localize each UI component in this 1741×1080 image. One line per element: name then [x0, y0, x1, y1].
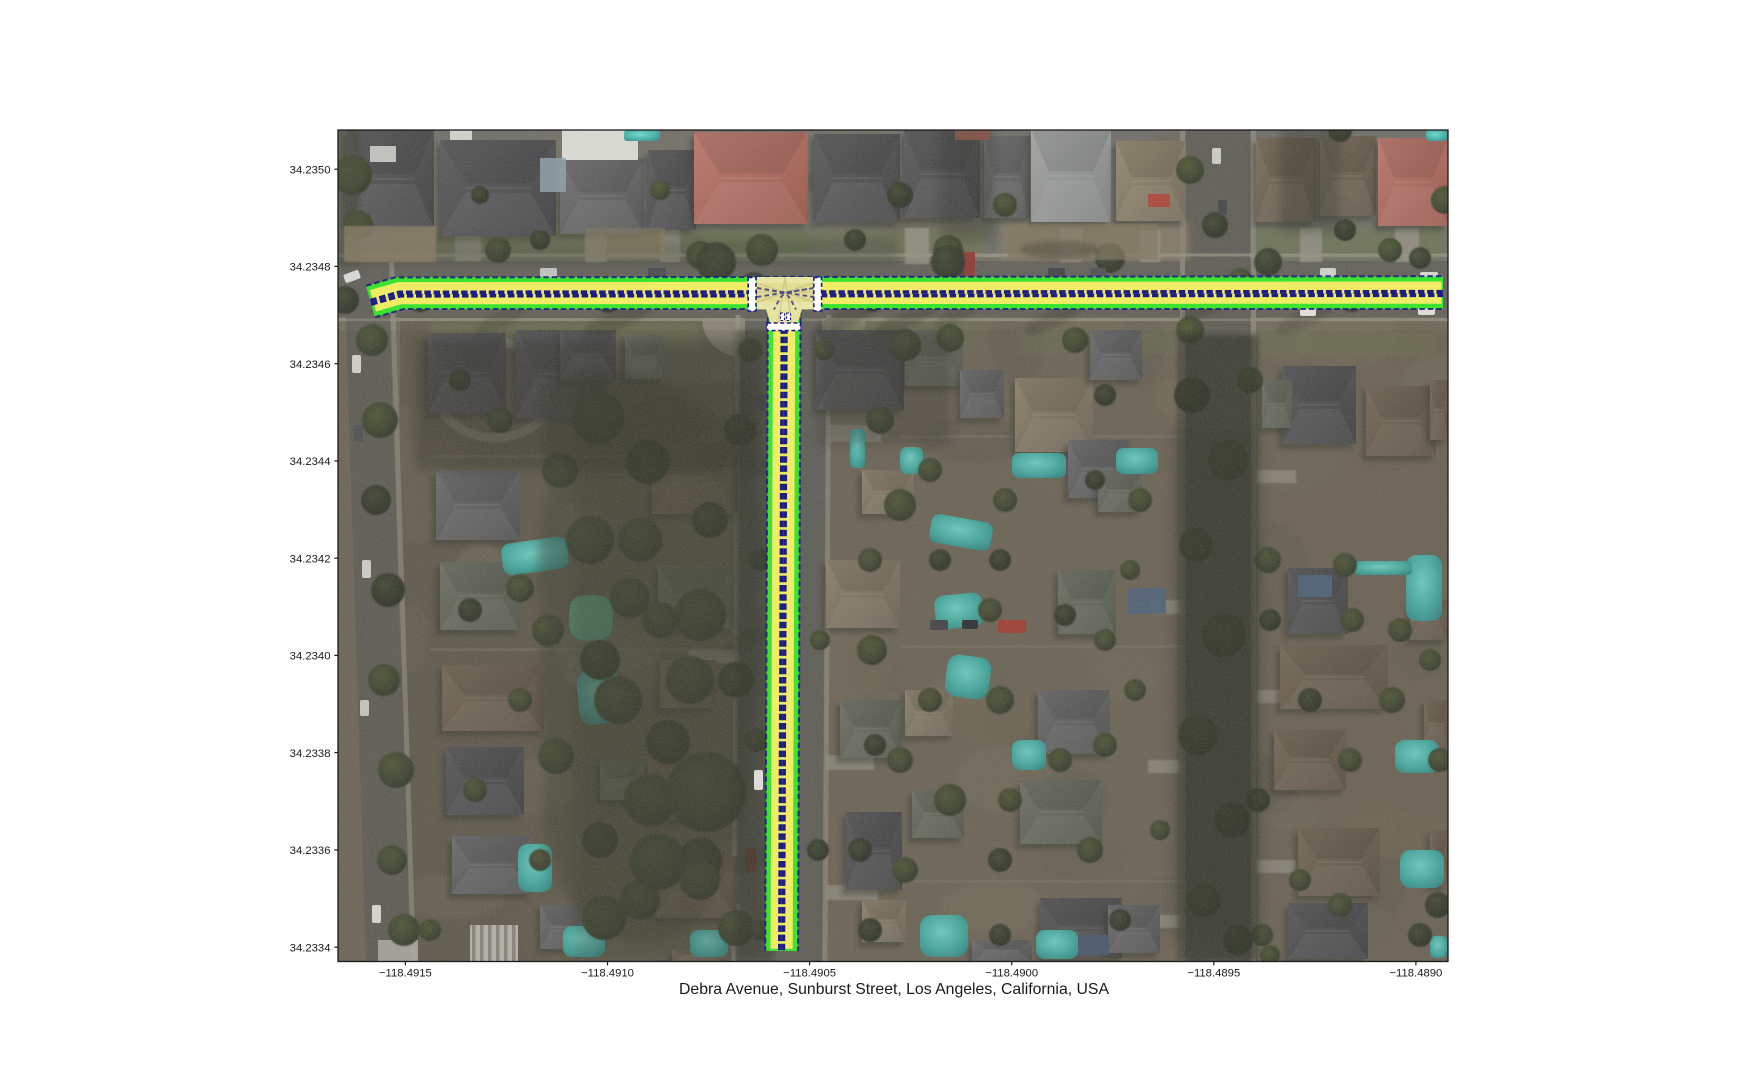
svg-text:34.2340: 34.2340 — [290, 651, 331, 663]
svg-text:34.2338: 34.2338 — [290, 748, 331, 760]
svg-text:Debra Avenue, Sunburst Street,: Debra Avenue, Sunburst Street, Los Angel… — [679, 981, 1109, 998]
svg-text:−118.4900: −118.4900 — [985, 968, 1038, 980]
svg-text:−118.4890: −118.4890 — [1389, 968, 1442, 980]
svg-text:−118.4905: −118.4905 — [783, 968, 836, 980]
svg-text:34.2334: 34.2334 — [290, 942, 331, 954]
svg-text:−118.4910: −118.4910 — [581, 968, 634, 980]
svg-text:34.2346: 34.2346 — [290, 359, 331, 371]
svg-text:34.2336: 34.2336 — [290, 845, 331, 857]
svg-text:−118.4915: −118.4915 — [379, 968, 432, 980]
svg-text:34.2350: 34.2350 — [290, 164, 331, 176]
svg-text:34.2342: 34.2342 — [290, 553, 331, 565]
svg-text:34.2348: 34.2348 — [290, 262, 331, 274]
svg-text:34.2344: 34.2344 — [290, 456, 331, 468]
svg-text:−118.4895: −118.4895 — [1187, 968, 1240, 980]
